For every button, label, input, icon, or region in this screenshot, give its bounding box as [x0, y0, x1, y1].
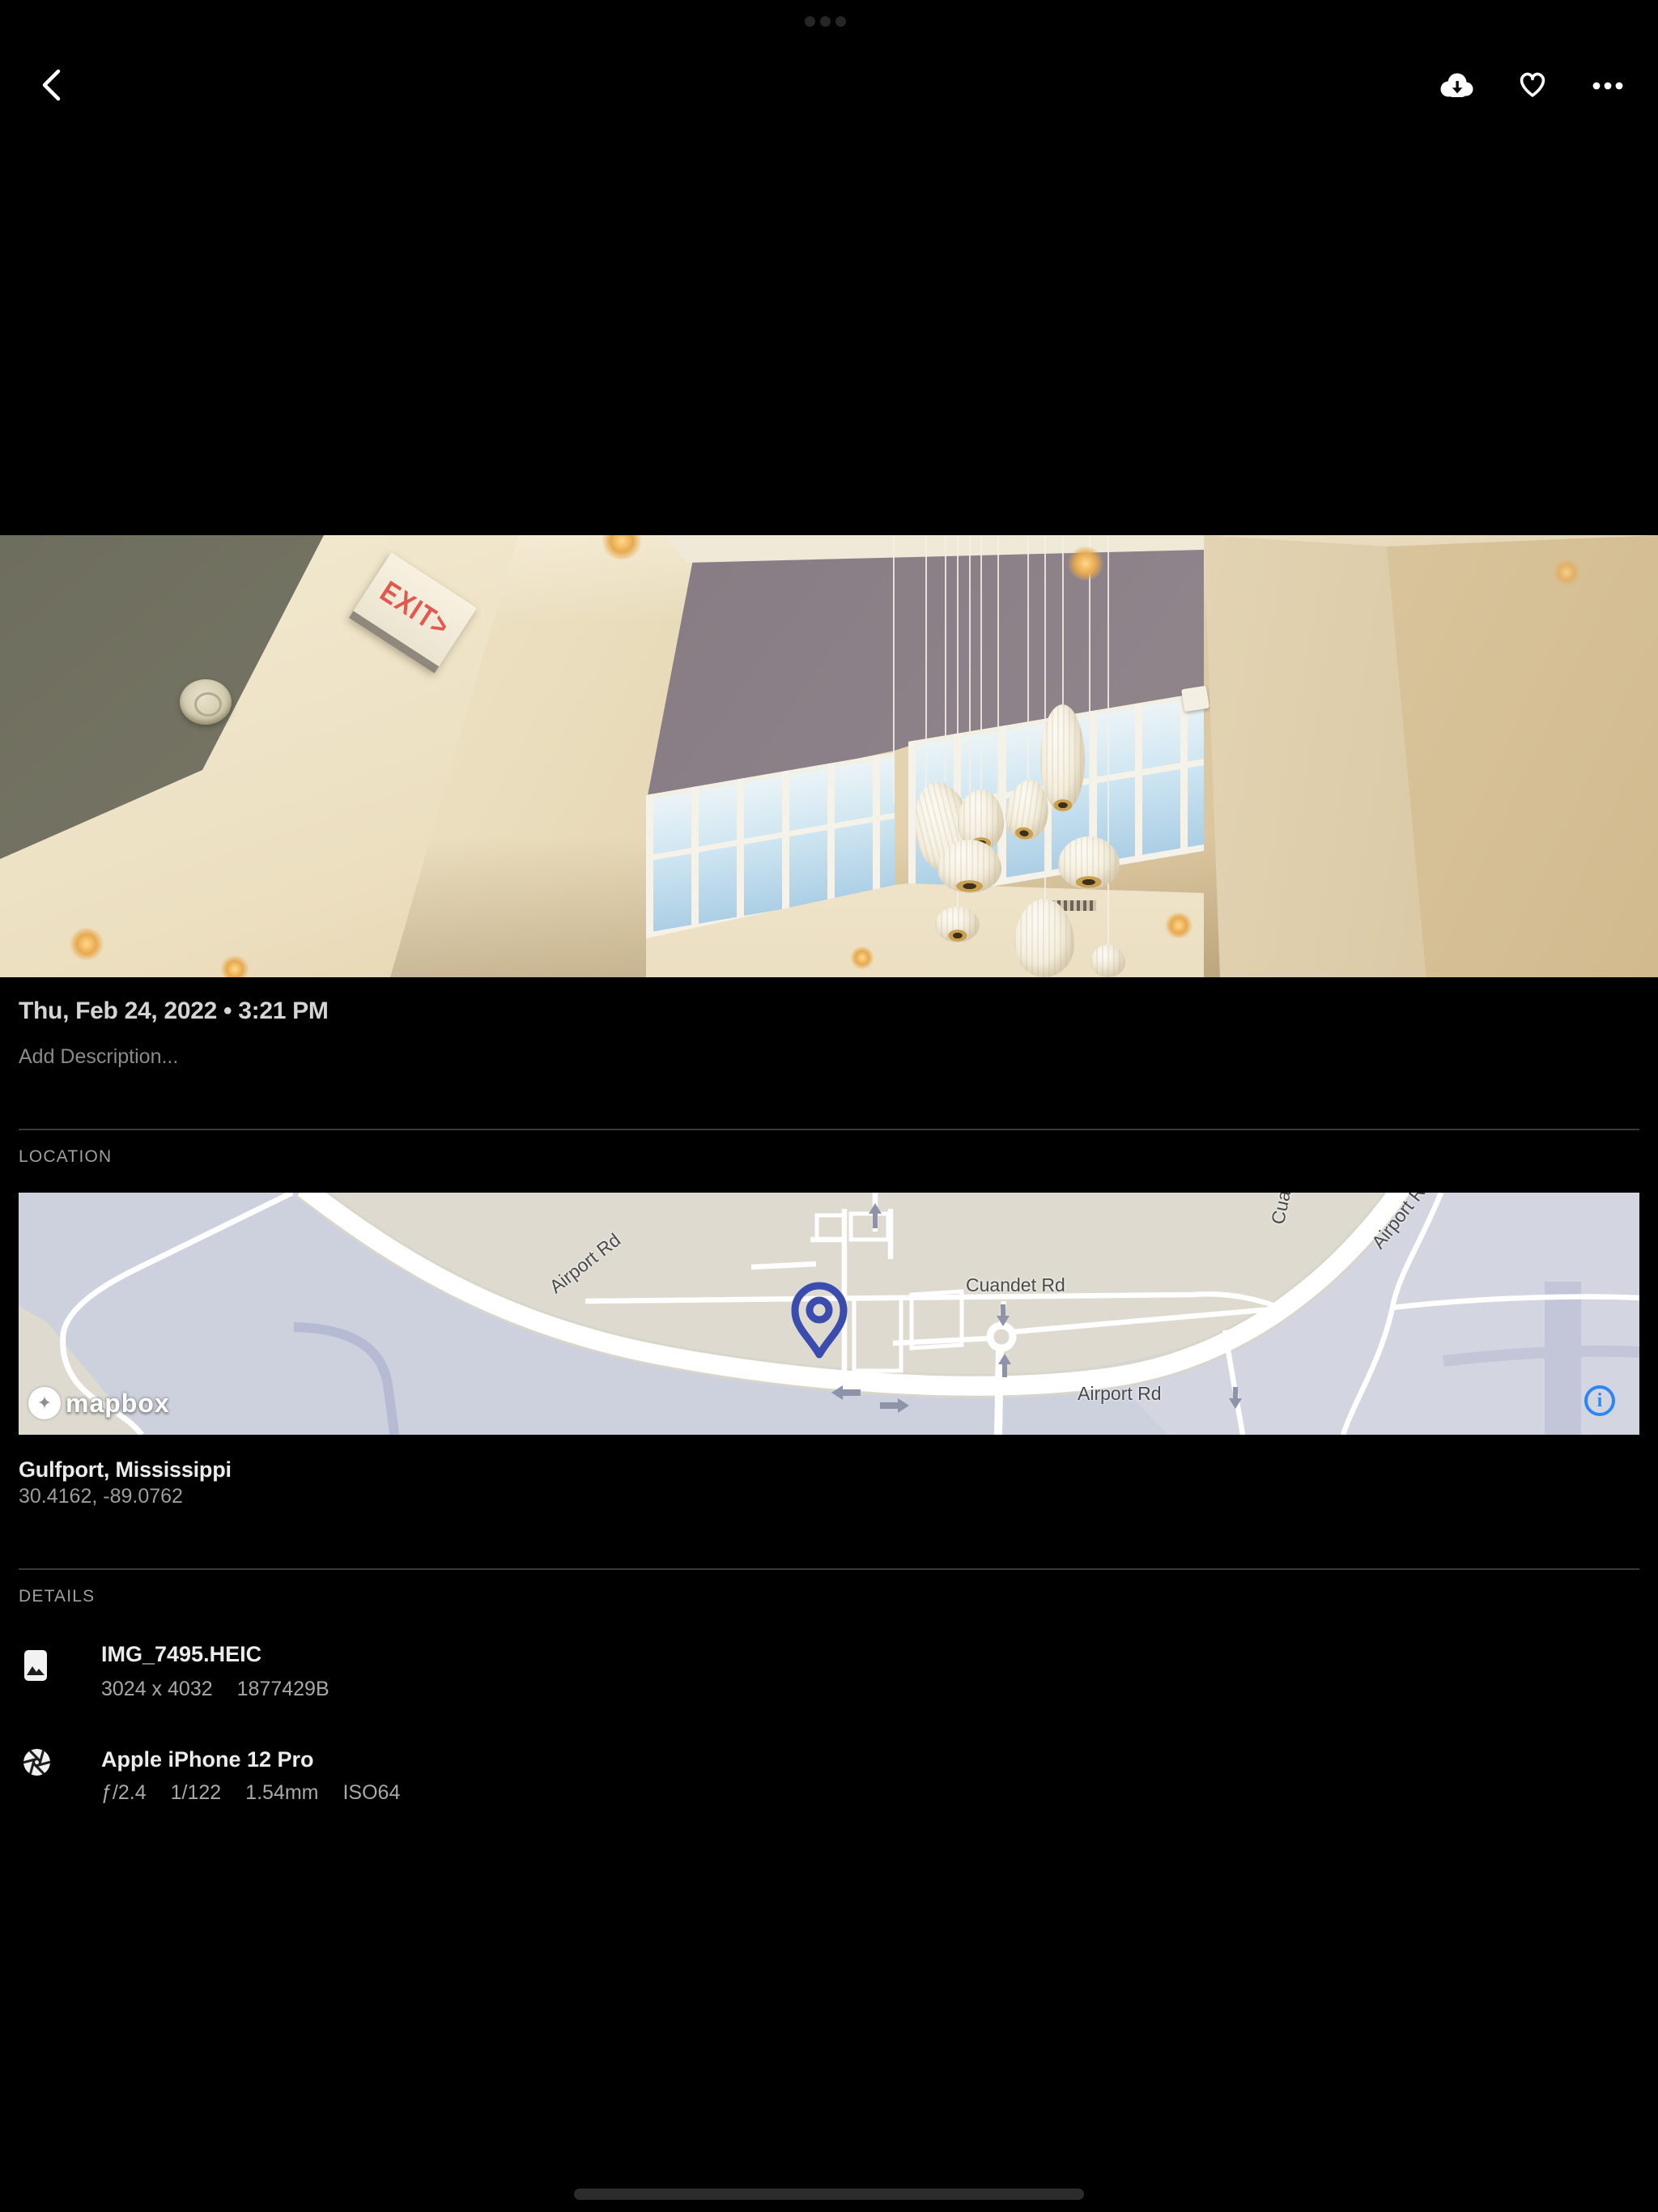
map-road-label: Airport Rd [1078, 1383, 1162, 1405]
pendant-lamp [935, 907, 980, 942]
camera-aperture-icon [22, 1747, 52, 1781]
location-map[interactable]: Airport Rd Cuandet Rd Airport Rd Airport… [19, 1193, 1639, 1435]
pendant-lamp [937, 840, 1001, 893]
lamp-cable [893, 535, 895, 802]
map-secondary-road [1545, 1282, 1581, 1435]
location-header: LOCATION [19, 1147, 112, 1167]
system-drag-handle-icon [805, 16, 846, 27]
wall-speaker [1181, 686, 1209, 713]
lamp-cable [1062, 535, 1064, 704]
divider [19, 1129, 1639, 1130]
file-name: IMG_7495.HEIC [101, 1642, 261, 1667]
camera-aperture: ƒ/2.4 [101, 1781, 147, 1804]
lamp-cable [925, 535, 927, 823]
map-info-button[interactable]: i [1584, 1385, 1615, 1416]
lamp-cable [1089, 535, 1090, 836]
ceiling-light [1164, 912, 1193, 938]
description-field[interactable]: Add Description... [19, 1045, 178, 1069]
back-button[interactable] [39, 68, 63, 106]
camera-name: Apple iPhone 12 Pro [101, 1747, 314, 1772]
mapbox-logo-icon: ✦ [28, 1387, 61, 1419]
pendant-lamp [1058, 836, 1120, 889]
info-icon: i [1597, 1390, 1603, 1412]
file-meta: 3024 x 40321877429B [101, 1678, 354, 1701]
ceiling-light [69, 928, 104, 960]
location-place: Gulfport, Mississippi [19, 1457, 232, 1482]
more-button[interactable] [1592, 80, 1624, 95]
camera-meta: ƒ/2.41/1221.54mmISO64 [101, 1781, 424, 1805]
photo-date: Thu, Feb 24, 2022 • 3:21 PM [19, 998, 329, 1025]
details-header: DETAILS [19, 1587, 95, 1606]
ceiling-light [220, 955, 249, 977]
heart-icon [1517, 70, 1548, 99]
favorite-button[interactable] [1517, 70, 1548, 103]
pendant-lamp [1090, 945, 1125, 977]
home-indicator[interactable] [574, 2189, 1084, 2200]
mapbox-logo-text: mapbox [66, 1389, 170, 1419]
ceiling-light [1067, 547, 1104, 581]
lamp-cable [980, 535, 982, 789]
file-dimensions: 3024 x 4032 [101, 1678, 213, 1700]
lamp-cable [1044, 535, 1046, 899]
smoke-detector [180, 679, 232, 725]
file-size: 1877429B [237, 1678, 329, 1700]
ceiling-light [1553, 559, 1580, 585]
cloud-download-icon [1437, 71, 1476, 100]
lamp-cable [1027, 535, 1029, 780]
divider [19, 1568, 1639, 1570]
lamp-cable [945, 535, 946, 781]
location-coordinates: 30.4162, -89.0762 [19, 1485, 183, 1508]
map-road-label: Cuandet Rd [966, 1274, 1065, 1296]
ceiling-light [850, 946, 874, 969]
download-button[interactable] [1437, 71, 1476, 104]
chevron-left-icon [39, 68, 63, 102]
photo-detail-screen: EXIT> [0, 0, 1658, 2212]
pendant-lamp [1040, 704, 1085, 812]
mapbox-attribution[interactable]: ✦ mapbox [28, 1387, 170, 1419]
camera-iso: ISO64 [342, 1781, 400, 1804]
image-file-icon [24, 1650, 47, 1681]
camera-shutter: 1/122 [171, 1781, 222, 1804]
photo-image[interactable]: EXIT> [0, 535, 1658, 977]
ellipsis-icon [1592, 81, 1624, 91]
camera-focal-length: 1.54mm [245, 1781, 318, 1804]
